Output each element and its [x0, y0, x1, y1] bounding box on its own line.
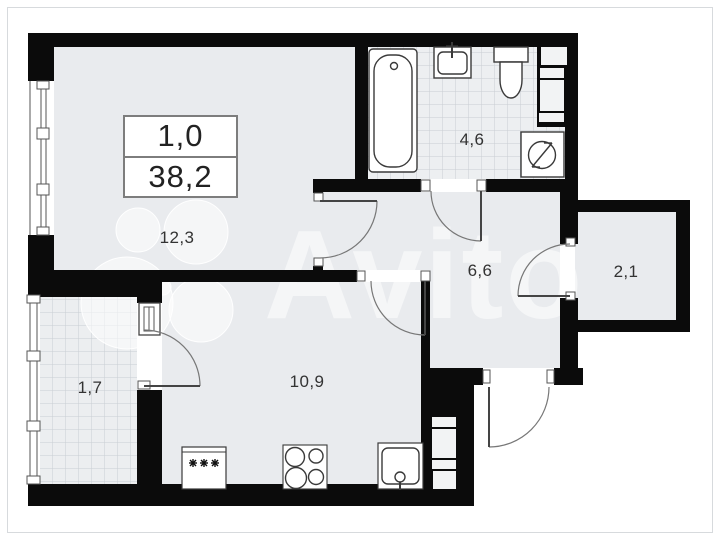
balcony-window — [27, 295, 40, 484]
bathroom-shelf-niches — [539, 47, 567, 122]
unit-info-box: 1,0 38,2 — [123, 115, 238, 198]
unit-rooms-count: 1,0 — [125, 117, 236, 158]
living-room-window — [28, 81, 54, 235]
unit-total-area: 38,2 — [125, 158, 236, 197]
area-label-hallway: 6,6 — [468, 261, 493, 281]
washing-machine — [521, 132, 564, 177]
kitchen-sink — [378, 443, 423, 490]
floor-plan-image: Avito — [0, 0, 720, 539]
area-label-storage: 2,1 — [614, 262, 639, 282]
stove — [283, 445, 327, 489]
area-label-kitchen: 10,9 — [290, 372, 325, 392]
area-label-balcony: 1,7 — [78, 378, 103, 398]
bathroom-sink — [434, 42, 471, 78]
area-label-living-room: 12,3 — [160, 228, 195, 248]
bathtub — [369, 49, 417, 172]
entrance-door — [489, 387, 549, 447]
kitchen-appliance-knobs — [182, 447, 226, 489]
area-label-bathroom: 4,6 — [460, 130, 485, 150]
floor-plan-drawing: Avito — [0, 0, 720, 539]
